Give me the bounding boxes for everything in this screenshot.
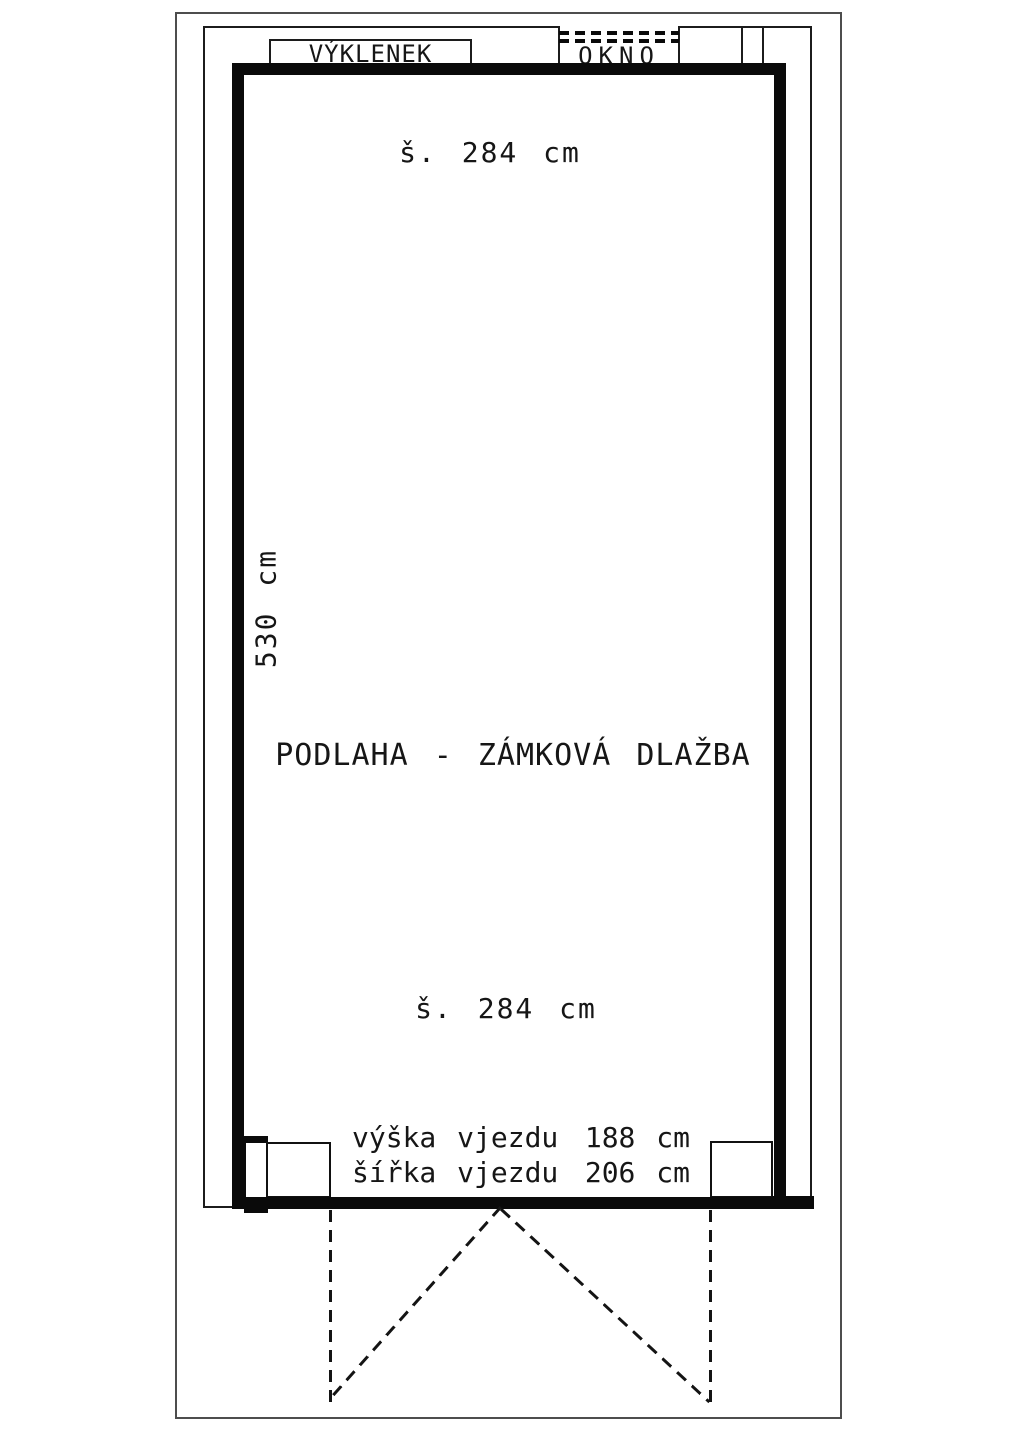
niche-box: VÝKLENEK [269, 39, 472, 66]
entrance-height-label: výška vjezdu [352, 1120, 558, 1155]
dimension-width-bottom: š. 284 cm [356, 992, 656, 1025]
door-swing-right-edge [709, 1210, 712, 1403]
entrance-width-label: šířka vjezdu [352, 1155, 558, 1190]
door-swing-left-edge [329, 1210, 332, 1403]
entrance-width-value: 206 cm [585, 1155, 690, 1190]
dimension-width-top: š. 284 cm [340, 136, 640, 169]
entrance-height-value: 188 cm [585, 1120, 690, 1155]
room-wall [232, 63, 786, 1209]
entrance-width-row: šířka vjezdu 206 cm [352, 1155, 690, 1190]
dimension-height-left: 530 cm [250, 509, 283, 709]
window-box: OKNO [558, 26, 680, 65]
floor-material-label: PODLAHA - ZÁMKOVÁ DLAŽBA [238, 738, 788, 773]
entrance-dimensions: výška vjezdu 188 cm šířka vjezdu 206 cm [352, 1120, 690, 1190]
window-glazing-dash-top [559, 31, 679, 35]
wall-foot-right [772, 1196, 814, 1209]
entrance-height-row: výška vjezdu 188 cm [352, 1120, 690, 1155]
wall-pier-lines [741, 26, 764, 64]
floor-plan-scan: VÝKLENEK OKNO š. 284 cm 530 cm PODLAHA -… [0, 0, 1024, 1448]
